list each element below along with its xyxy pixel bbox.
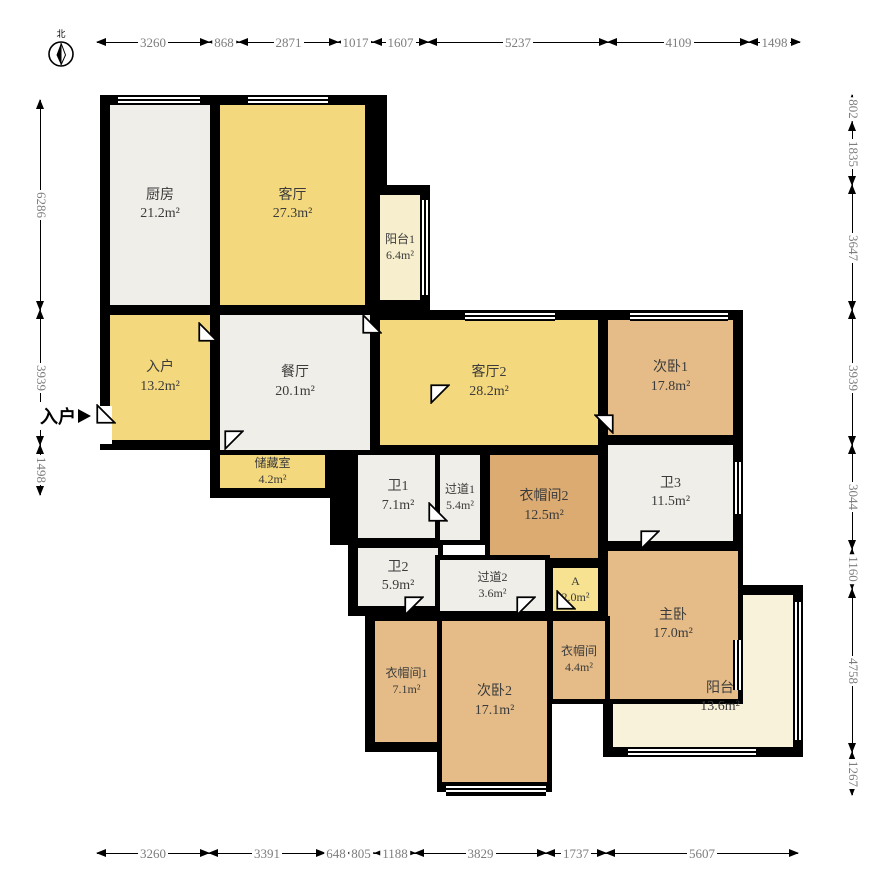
room-storage: 储藏室 4.2m²	[210, 450, 335, 498]
door-icon	[516, 596, 536, 616]
room-bath1: 卫1 7.1m²	[348, 450, 443, 543]
dim-top-3: 1017	[338, 42, 373, 43]
dim-bottom-7: 5607	[606, 853, 798, 854]
dim-left-2: 1498	[40, 445, 41, 495]
dim-right-3: 3939	[852, 310, 853, 445]
dim-top-6: 4109	[608, 42, 749, 43]
door-icon	[640, 530, 660, 550]
dim-right-7: 1267	[852, 752, 853, 795]
window	[420, 200, 430, 295]
window	[248, 95, 328, 105]
dim-bottom-5: 3829	[415, 853, 546, 854]
door-icon	[594, 414, 614, 434]
entrance-marker: 入户	[40, 402, 91, 430]
dim-left-0: 6286	[40, 100, 41, 310]
room-living1: 客厅 27.3m²	[215, 95, 375, 310]
dim-bottom-2: 648	[325, 853, 347, 854]
room-closet2: 衣帽间2 12.5m²	[485, 450, 603, 563]
window	[733, 462, 743, 514]
window	[628, 747, 756, 757]
door-icon	[428, 502, 448, 522]
room-balcony2-label: 阳台 13.6m²	[675, 680, 765, 716]
north-label: 北	[44, 30, 78, 39]
window	[118, 95, 200, 105]
room-bedroom2: 次卧2 17.1m²	[437, 616, 552, 792]
dim-top-7: 1498	[749, 42, 800, 43]
dim-right-0: 802	[852, 95, 853, 122]
dim-bottom-6: 1737	[546, 853, 606, 854]
room-living2: 客厅2 28.2m²	[375, 310, 603, 450]
door-icon	[430, 384, 450, 404]
wall-segment	[330, 450, 352, 545]
dim-bottom-1: 3391	[209, 853, 325, 854]
room-bedroom1: 次卧1 17.8m²	[603, 310, 743, 440]
dim-top-1: 868	[209, 42, 239, 43]
window	[465, 311, 555, 321]
dim-right-2: 3647	[852, 185, 853, 310]
room-closet3: 衣帽间 4.4m²	[548, 616, 610, 704]
dim-top-5: 5237	[428, 42, 608, 43]
compass: 北	[44, 30, 78, 74]
dim-bottom-0: 3260	[97, 853, 209, 854]
door-icon	[362, 314, 382, 334]
window-bay	[446, 784, 546, 796]
room-kitchen: 厨房 21.2m²	[100, 95, 215, 310]
dim-right-4: 3044	[852, 445, 853, 549]
door-icon	[556, 590, 576, 610]
compass-icon	[46, 39, 76, 69]
dim-bottom-4: 1188	[375, 853, 415, 854]
wall-segment	[375, 95, 387, 190]
entrance-label: 入户	[40, 403, 76, 429]
dim-top-0: 3260	[97, 42, 209, 43]
room-bath3: 卫3 11.5m²	[603, 440, 743, 546]
dim-bottom-3: 805	[347, 853, 375, 854]
window	[793, 602, 803, 740]
dim-right-6: 4758	[852, 589, 853, 752]
dim-top-2: 2871	[239, 42, 338, 43]
door-icon	[404, 596, 424, 616]
window	[630, 311, 728, 321]
room-closet1: 衣帽间1 7.1m²	[365, 616, 443, 752]
door-icon	[198, 322, 218, 342]
door-icon	[224, 430, 244, 450]
door-icon	[96, 404, 116, 424]
room-corridor1: 过道1 5.4m²	[435, 450, 485, 545]
room-bath2: 卫2 5.9m²	[348, 543, 443, 616]
dim-right-5: 1160	[852, 549, 853, 589]
dim-right-1: 1835	[852, 122, 853, 185]
entrance-arrow-icon	[78, 409, 91, 423]
dim-top-4: 1607	[373, 42, 428, 43]
floor-plan: 北 入户 阳台 13.6m² 厨房 21.2m² 客厅 27.3m² 阳台1 6…	[0, 0, 893, 893]
